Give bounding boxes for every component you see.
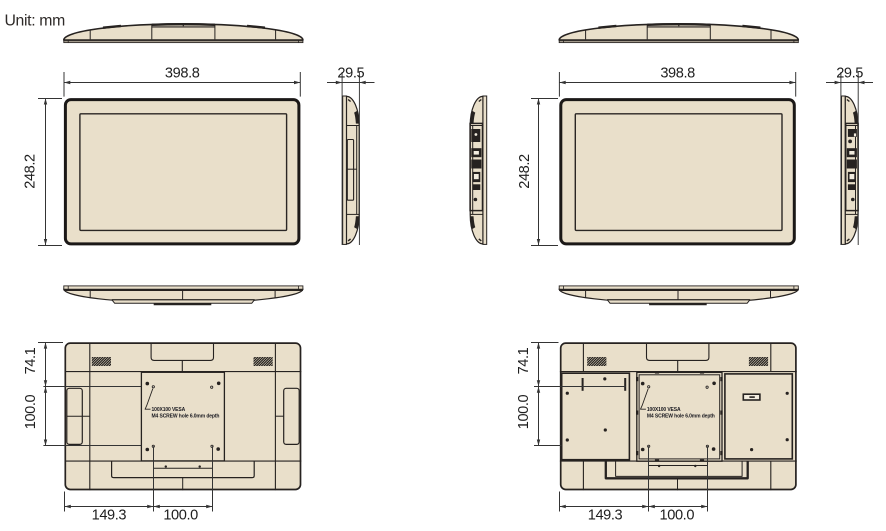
- svg-text:29.5: 29.5: [836, 66, 863, 82]
- svg-text:100.0: 100.0: [23, 394, 39, 429]
- svg-text:74.1: 74.1: [23, 347, 39, 374]
- svg-text:248.2: 248.2: [22, 154, 38, 189]
- svg-text:100.0: 100.0: [516, 394, 532, 429]
- svg-text:M4 SCREW hole 6.0mm depth: M4 SCREW hole 6.0mm depth: [152, 414, 220, 420]
- svg-text:398.8: 398.8: [660, 66, 695, 82]
- svg-text:149.3: 149.3: [588, 508, 623, 524]
- svg-text:100X100 VESA: 100X100 VESA: [647, 407, 681, 413]
- svg-text:100.0: 100.0: [163, 508, 198, 524]
- svg-text:100.0: 100.0: [660, 508, 695, 524]
- svg-text:74.1: 74.1: [516, 347, 532, 374]
- svg-text:29.5: 29.5: [337, 66, 364, 82]
- svg-text:M4 SCREW hole 6.0mm depth: M4 SCREW hole 6.0mm depth: [647, 414, 715, 420]
- svg-text:100X100 VESA: 100X100 VESA: [152, 407, 186, 413]
- svg-text:248.2: 248.2: [517, 154, 533, 189]
- svg-text:Unit: mm: Unit: mm: [5, 13, 66, 30]
- svg-text:398.8: 398.8: [165, 66, 200, 82]
- svg-text:149.3: 149.3: [92, 508, 127, 524]
